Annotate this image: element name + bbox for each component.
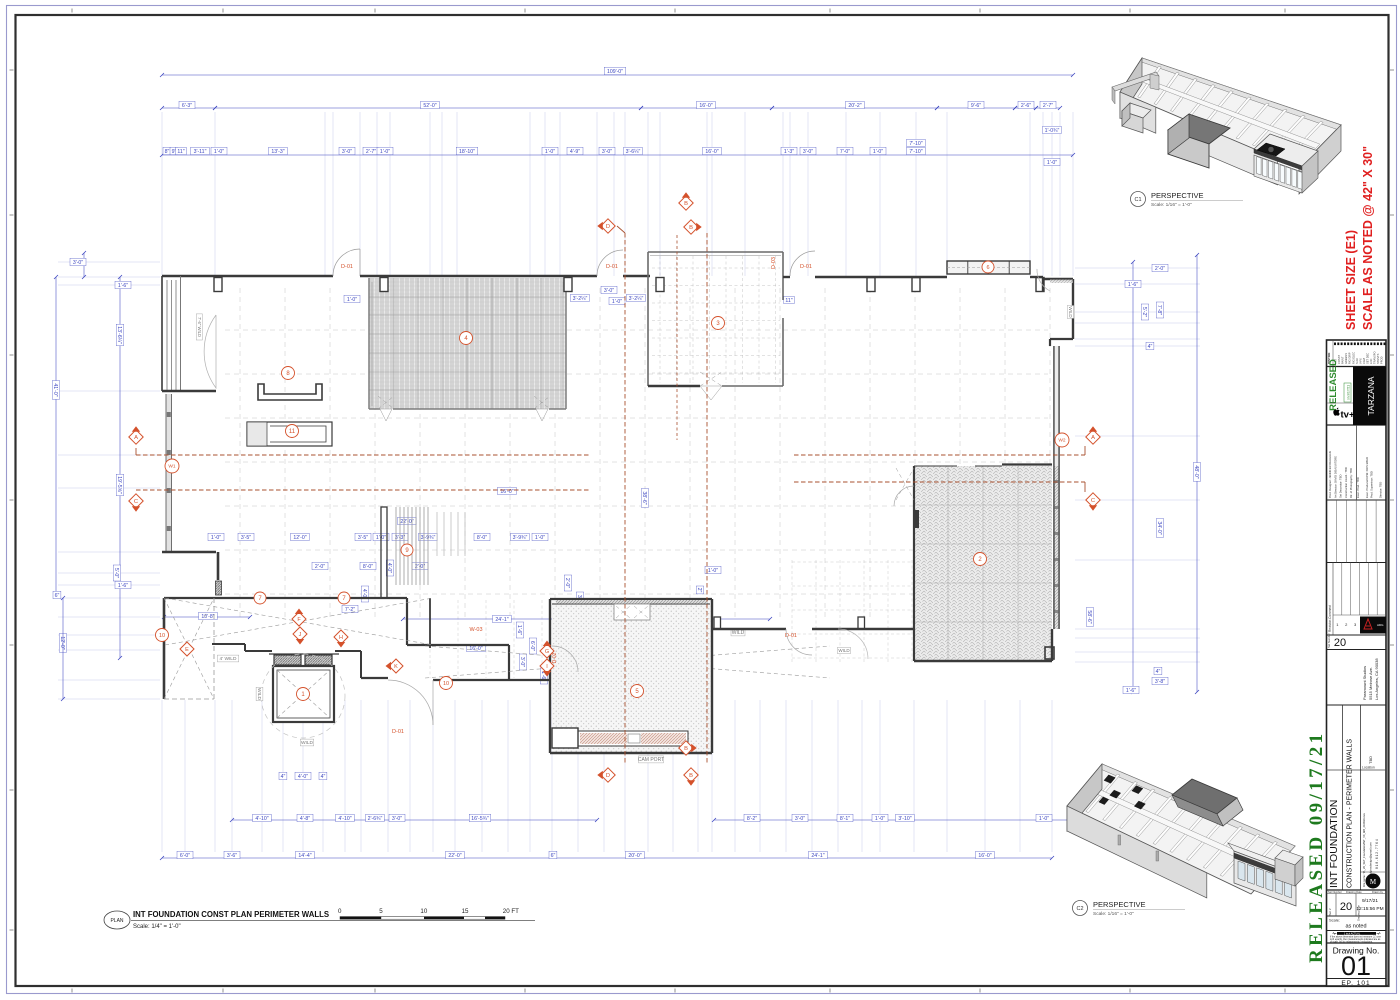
svg-text:6: 6 <box>986 265 989 271</box>
svg-text:24'-1": 24'-1" <box>811 853 824 859</box>
svg-text:Prod. Supervisor: TBD: Prod. Supervisor: TBD <box>1370 471 1374 498</box>
svg-text:Revision Comment: Revision Comment <box>1328 605 1332 632</box>
svg-text:20 FT: 20 FT <box>503 908 519 915</box>
svg-text:Drawn by: Drawn by <box>1372 890 1384 894</box>
svg-text:LOC: LOC <box>1369 359 1373 364</box>
svg-text:34'-0": 34'-0" <box>1156 521 1162 534</box>
svg-text:1'-0¾": 1'-0¾" <box>1045 128 1060 134</box>
svg-text:7'-6" WILD: 7'-6" WILD <box>197 317 202 337</box>
svg-text:Set Number: Set Number <box>1328 890 1342 894</box>
svg-text:0: 0 <box>338 908 342 915</box>
svg-text:PERSPECTIVE: PERSPECTIVE <box>1151 191 1204 200</box>
svg-text:3'-0": 3'-0" <box>803 149 813 155</box>
svg-text:22'-0": 22'-0" <box>448 853 461 859</box>
svg-text:Art Director: DAVID DISALVATO: Art Director: DAVID DISALVATORE <box>1333 456 1337 498</box>
svg-text:19'-5⅝": 19'-5⅝" <box>116 476 122 494</box>
svg-text:12'-0": 12'-0" <box>293 535 306 541</box>
svg-text:16'-0": 16'-0" <box>699 103 712 109</box>
svg-text:D-01: D-01 <box>392 729 404 735</box>
svg-text:2": 2" <box>696 588 702 593</box>
svg-text:3'-2¼": 3'-2¼" <box>629 296 644 302</box>
svg-text:7'-10": 7'-10" <box>909 149 922 155</box>
svg-text:PAINT: PAINT <box>1341 356 1345 364</box>
svg-text:D-01: D-01 <box>800 264 812 270</box>
svg-text:W1: W1 <box>168 464 176 470</box>
svg-text:RIG ELEC: RIG ELEC <box>1351 352 1355 364</box>
svg-text:Set #: Set # <box>1328 908 1332 915</box>
svg-text:1'-0": 1'-0" <box>708 568 718 574</box>
svg-text:TRANSPO: TRANSPO <box>1373 351 1377 364</box>
svg-text:D-01: D-01 <box>606 264 618 270</box>
svg-text:20'-0": 20'-0" <box>628 853 641 859</box>
svg-text:1'-6": 1'-6" <box>118 583 128 589</box>
svg-text:13'-3": 13'-3" <box>271 149 284 155</box>
svg-text:TARZANA: TARZANA <box>1366 376 1376 415</box>
svg-text:4": 4" <box>281 774 286 780</box>
svg-text:16'-0": 16'-0" <box>469 646 482 652</box>
svg-text:M: M <box>1370 878 1377 886</box>
svg-text:PROD: PROD <box>1380 356 1384 364</box>
svg-text:4": 4" <box>1156 669 1161 675</box>
svg-text:1'-0": 1'-0" <box>380 149 390 155</box>
svg-text:5515 Melrose Ave.: 5515 Melrose Ave. <box>1368 667 1373 700</box>
svg-text:24'-1": 24'-1" <box>495 617 508 623</box>
svg-text:14'-4": 14'-4" <box>298 853 311 859</box>
svg-text:3'-0": 3'-0" <box>795 816 805 822</box>
svg-text:4'-10": 4'-10" <box>338 816 351 822</box>
svg-text:PLAN: PLAN <box>110 918 123 924</box>
svg-text:4": 4" <box>1148 344 1153 350</box>
svg-text:Scale:: Scale: <box>1329 918 1340 923</box>
svg-text:4'-9": 4'-9" <box>570 149 580 155</box>
svg-text:V-FX: V-FX <box>1358 358 1362 364</box>
svg-text:Los Angeles, CA 90038: Los Angeles, CA 90038 <box>1374 658 1379 700</box>
svg-text:SHEET SIZE (E1): SHEET SIZE (E1) <box>1344 230 1358 330</box>
svg-text:WILD: WILD <box>732 630 745 636</box>
svg-text:8'-0": 8'-0" <box>363 564 373 570</box>
svg-text:RIG GRIP: RIG GRIP <box>1348 352 1352 364</box>
svg-text:D: D <box>606 773 610 779</box>
svg-text:File name: TA_20_SET_Foundati: File name: TA_20_SET_Foundation/INT_V4_M… <box>1362 812 1366 887</box>
svg-text:INT FOUNDATION: INT FOUNDATION <box>1328 800 1340 888</box>
svg-text:109'-0": 109'-0" <box>607 69 623 75</box>
svg-text:Scale: 1/16" = 1'-0": Scale: 1/16" = 1'-0" <box>1093 911 1134 917</box>
svg-text:D-02: D-02 <box>552 652 558 663</box>
svg-text:11": 11" <box>177 149 184 155</box>
svg-text:2'-7": 2'-7" <box>1043 103 1053 109</box>
svg-text:8'-0": 8'-0" <box>477 535 487 541</box>
svg-text:W2: W2 <box>1058 438 1066 444</box>
svg-text:58'-6": 58'-6" <box>1086 610 1092 623</box>
svg-text:3'-0": 3'-0" <box>602 149 612 155</box>
svg-text:D: D <box>606 224 610 230</box>
svg-text:Director: TBD: Director: TBD <box>1379 482 1383 498</box>
svg-text:10: 10 <box>159 633 165 639</box>
svg-text:C: C <box>134 499 138 505</box>
svg-text:3'-0": 3'-0" <box>519 657 525 667</box>
svg-text:13'-6¼": 13'-6¼" <box>116 326 122 344</box>
svg-text:WILD: WILD <box>838 648 850 653</box>
svg-text:1'-0": 1'-0" <box>873 149 883 155</box>
svg-text:B: B <box>689 773 693 779</box>
svg-text:4'-0": 4'-0" <box>298 774 308 780</box>
svg-text:Exec. Prod.: TBD: Exec. Prod.: TBD <box>1356 477 1360 498</box>
svg-text:Paramount Studios: Paramount Studios <box>1362 666 1367 700</box>
svg-text:Set Number: Set Number <box>1327 633 1331 648</box>
svg-text:01: 01 <box>1341 951 1371 981</box>
svg-text:10'-8": 10'-8" <box>201 614 214 620</box>
svg-text:Exec. Producer/UPM: KRIS EBER: Exec. Producer/UPM: KRIS EBER <box>1365 457 1369 498</box>
svg-text:WILD: WILD <box>256 688 262 701</box>
svg-text:1'-3": 1'-3" <box>784 149 794 155</box>
svg-text:1'-0": 1'-0" <box>211 535 221 541</box>
svg-text:5: 5 <box>379 908 383 915</box>
svg-text:15: 15 <box>462 908 469 915</box>
svg-text:C: C <box>1091 498 1095 504</box>
svg-text:8'-1": 8'-1" <box>840 816 850 822</box>
svg-text:PERSPECTIVE: PERSPECTIVE <box>1093 900 1146 909</box>
svg-text:7'-8": 7'-8" <box>1156 305 1162 315</box>
svg-text:INT FOUNDATION CONST PLAN PERI: INT FOUNDATION CONST PLAN PERIMETER WALL… <box>133 910 329 919</box>
svg-text:G: G <box>545 649 549 655</box>
svg-text:3'-0": 3'-0" <box>392 816 402 822</box>
svg-text:1'-0": 1'-0" <box>875 816 885 822</box>
svg-text:11": 11" <box>785 298 792 304</box>
svg-text:3'-11": 3'-11" <box>194 149 207 155</box>
svg-text:10: 10 <box>443 681 449 687</box>
svg-text:6'-0": 6'-0" <box>529 641 535 651</box>
svg-text:WILD: WILD <box>301 740 314 746</box>
svg-text:B: B <box>689 225 693 231</box>
svg-text:2'-6¾": 2'-6¾" <box>368 816 383 822</box>
svg-text:as noted: as noted <box>1345 924 1366 930</box>
svg-text:16'-5¾": 16'-5¾" <box>471 816 489 822</box>
svg-text:18'-10": 18'-10" <box>459 149 475 155</box>
svg-text:38'-6": 38'-6" <box>641 491 647 504</box>
svg-text:2'-0": 2'-0" <box>564 578 570 588</box>
svg-text:12'-0": 12'-0" <box>59 636 65 649</box>
svg-text:1'-0": 1'-0" <box>535 535 545 541</box>
svg-text:20: 20 <box>1340 901 1352 913</box>
svg-text:inch exactly, then measuremen: inch exactly, then measurements indicate… <box>1330 938 1381 941</box>
svg-text:SET DEC: SET DEC <box>1365 353 1369 364</box>
svg-text:41'-0": 41'-0" <box>52 383 58 396</box>
svg-text:3'-5": 3'-5" <box>241 535 251 541</box>
svg-text:1'-0": 1'-0" <box>545 149 555 155</box>
svg-text:12:15:56 PM: 12:15:56 PM <box>1356 906 1383 912</box>
svg-text:6'-0": 6'-0" <box>180 853 190 859</box>
svg-text:CAM: CAM <box>1362 358 1366 364</box>
svg-text:J: J <box>299 632 302 638</box>
svg-text:B: B <box>684 746 688 752</box>
svg-text:6": 6" <box>551 853 556 859</box>
svg-text:3'-0": 3'-0" <box>604 288 614 294</box>
svg-text:3'-0": 3'-0" <box>73 260 83 266</box>
svg-text:of scale, but to enlargements: of scale, but to enlargements / reductio… <box>1330 941 1373 944</box>
svg-text:WILD: WILD <box>1068 306 1073 318</box>
svg-text:TBD: TBD <box>1368 756 1373 764</box>
svg-text:3'-10": 3'-10" <box>898 816 911 822</box>
svg-text:1 inch ACTUAL: 1 inch ACTUAL <box>1344 932 1361 935</box>
svg-text:2'-7": 2'-7" <box>366 149 376 155</box>
svg-text:A: A <box>1091 435 1095 441</box>
svg-text:Scale: 1/16" = 1'-0": Scale: 1/16" = 1'-0" <box>1151 202 1192 208</box>
svg-text:Location: Location <box>1362 766 1375 770</box>
svg-text:4' WILD: 4' WILD <box>220 656 237 662</box>
svg-text:3'-2¼": 3'-2¼" <box>573 296 588 302</box>
svg-text:If the above dimension does no: If the above dimension does not measure … <box>1330 935 1382 938</box>
svg-text:20: 20 <box>1334 637 1346 649</box>
svg-text:1'-0": 1'-0" <box>1039 816 1049 822</box>
svg-text:D-01: D-01 <box>341 264 353 270</box>
svg-text:SCALE AS NOTED @ 42" X 30": SCALE AS NOTED @ 42" X 30" <box>1361 146 1375 330</box>
svg-text:Construction Coord.: TBD: Construction Coord.: TBD <box>1344 467 1348 498</box>
svg-text:Scale: 1/4" = 1'-0": Scale: 1/4" = 1'-0" <box>133 924 181 930</box>
svg-text:on 9/17/21: on 9/17/21 <box>1347 385 1351 400</box>
svg-text:2'-6": 2'-6" <box>1021 103 1031 109</box>
svg-text:52'-0": 52'-0" <box>423 103 436 109</box>
svg-text:5'-0": 5'-0" <box>113 568 119 578</box>
svg-text:E: E <box>185 647 189 653</box>
svg-text:B: B <box>684 201 688 207</box>
svg-text:3'-6": 3'-6" <box>227 853 237 859</box>
svg-text:16'-0": 16'-0" <box>978 853 991 859</box>
svg-text:D-03: D-03 <box>771 257 777 269</box>
svg-text:RELEASED 09/17/21: RELEASED 09/17/21 <box>1306 730 1327 963</box>
svg-text:6'-3": 6'-3" <box>182 103 192 109</box>
svg-text:1'-0": 1'-0" <box>214 149 224 155</box>
svg-text:5'-2": 5'-2" <box>1141 307 1147 317</box>
svg-text:8": 8" <box>165 149 170 155</box>
svg-text:C2: C2 <box>1076 906 1083 912</box>
svg-text:3'-8": 3'-8" <box>1155 679 1165 685</box>
svg-text:Drawing Date: Drawing Date <box>1346 890 1362 894</box>
svg-text:16'-0": 16'-0" <box>705 149 718 155</box>
svg-text:K: K <box>394 664 398 670</box>
svg-text:1'-6": 1'-6" <box>1128 282 1138 288</box>
svg-text:1'-6": 1'-6" <box>118 283 128 289</box>
svg-text:2'-0": 2'-0" <box>1155 266 1165 272</box>
svg-text:8 1 8 - 6 1 2 - 7 7 6 4: 8 1 8 - 6 1 2 - 7 7 6 4 <box>1375 839 1379 869</box>
svg-text:3'-6¼": 3'-6¼" <box>626 149 641 155</box>
svg-text:1'-0": 1'-0" <box>1047 160 1057 166</box>
svg-text:C1: C1 <box>1134 197 1141 203</box>
svg-text:S-FX: S-FX <box>1355 358 1359 364</box>
svg-text:11: 11 <box>289 429 296 435</box>
svg-text:CONSTRUCTION PLAN - PERIMETER: CONSTRUCTION PLAN - PERIMETER WALLS <box>1347 739 1354 888</box>
svg-text:1'-0": 1'-0" <box>347 297 357 303</box>
svg-text:20'-2": 20'-2" <box>848 103 861 109</box>
svg-text:STUNTS: STUNTS <box>1376 353 1380 364</box>
svg-text:GREENS: GREENS <box>1344 353 1348 364</box>
svg-text:7'-10": 7'-10" <box>909 141 922 147</box>
svg-text:3'-9¾": 3'-9¾" <box>513 535 528 541</box>
svg-text:48'-0": 48'-0" <box>1193 465 1199 478</box>
svg-text:3'-5": 3'-5" <box>358 535 368 541</box>
svg-text:9/17/21: 9/17/21 <box>1362 898 1378 904</box>
svg-text:4'-8": 4'-8" <box>300 816 310 822</box>
svg-text:A: A <box>134 435 138 441</box>
svg-text:ADG: ADG <box>1377 623 1384 627</box>
svg-text:EP. 101: EP. 101 <box>1341 980 1370 987</box>
svg-text:4'-10": 4'-10" <box>255 816 268 822</box>
svg-text:tv+: tv+ <box>1341 410 1355 421</box>
svg-text:Dir. of Photography: TBD: Dir. of Photography: TBD <box>1349 468 1353 498</box>
svg-text:1'-0": 1'-0" <box>612 299 622 305</box>
svg-text:3'-0": 3'-0" <box>342 149 352 155</box>
svg-text:H: H <box>339 635 343 641</box>
svg-text:4": 4" <box>321 774 326 780</box>
svg-text:Set Decorator: TBD: Set Decorator: TBD <box>1339 475 1343 498</box>
svg-text:1'-6": 1'-6" <box>1126 688 1136 694</box>
svg-text:Prod. Designer: JENNIFER DEHG: Prod. Designer: JENNIFER DEHGHAN <box>1328 451 1332 498</box>
svg-text:2'-0": 2'-0" <box>315 564 325 570</box>
svg-text:CAM PORT: CAM PORT <box>638 757 664 763</box>
svg-text:10: 10 <box>420 908 427 915</box>
svg-text:9'-6": 9'-6" <box>971 103 981 109</box>
svg-text:6": 6" <box>55 593 60 599</box>
svg-text:W-03: W-03 <box>469 627 482 633</box>
svg-text:8'-2": 8'-2" <box>747 816 757 822</box>
svg-text:7'-0": 7'-0" <box>840 149 850 155</box>
svg-text:1'-6": 1'-6" <box>516 625 522 635</box>
